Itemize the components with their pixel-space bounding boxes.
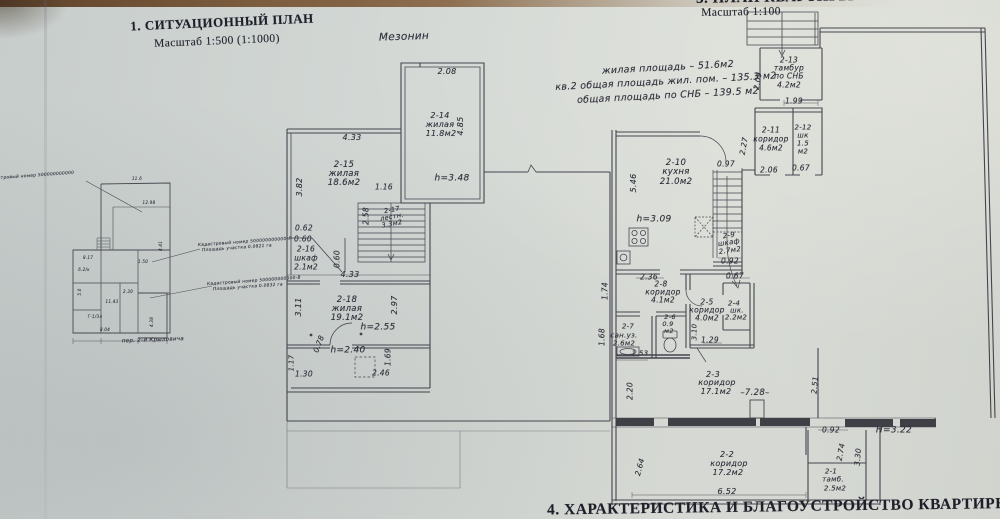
room-2-16-type: шкаф: [294, 254, 318, 262]
dim-label: 0.62: [295, 224, 313, 232]
room-2-16-number: 2-16: [297, 245, 315, 253]
level-mark: –7.28–: [740, 389, 769, 398]
dim-label: 2.58: [362, 207, 370, 225]
dim-label: 3.10: [692, 324, 699, 341]
dim-label: 4.33: [342, 134, 361, 142]
dim-label: 2.30: [123, 290, 133, 294]
room-2-2-number: 2-2: [720, 451, 734, 459]
dim-label: 4.38: [150, 317, 154, 327]
dim-label: 0.67: [726, 272, 744, 280]
room-2-4-area: 2.2м2: [725, 315, 747, 322]
dim-label: 2.09: [753, 72, 763, 91]
dim-label: 6.2/к: [78, 268, 90, 272]
room-2-18-area: 19.1м2: [331, 314, 364, 323]
dim-label: 2.08: [437, 68, 456, 76]
room-2-14-area: 11.8м2: [426, 130, 457, 138]
site-plan-scale: Масштаб 1:500 (1:1000): [154, 34, 280, 51]
dim-label: 2.51: [810, 376, 819, 394]
dim-label: 1.69: [384, 348, 392, 366]
dim-label: 11.43: [106, 300, 119, 304]
room-2-10-area: 21.0м2: [660, 178, 693, 187]
dim-label: 0.92: [822, 426, 840, 434]
apartment-plan-scale: Масштаб 1:100: [701, 7, 781, 20]
dim-label: 2.74: [836, 443, 846, 462]
dim-label: 8.17: [83, 256, 93, 260]
room-2-15-area: 18.6м2: [328, 179, 361, 188]
dim-label: 4.33: [340, 271, 359, 279]
room-2-12-type: шк: [797, 133, 808, 140]
room-2-7-type: сан.уз.: [610, 333, 637, 340]
room-2-17-area: 3.3м2: [381, 219, 403, 229]
dim-label: 2.20: [626, 382, 634, 400]
dim-label: 5.46: [630, 173, 638, 192]
room-2-11-number: 2-11: [762, 126, 780, 134]
dim-label: 1.74: [601, 282, 609, 300]
height-mark-annex: h=2.40: [330, 347, 365, 356]
mezzanine-title: Мезонин: [379, 31, 430, 43]
dim-label: 1.53: [632, 351, 649, 358]
characteristics-title: 4. ХАРАКТЕРИСТИКА И БЛАГОУСТРОЙСТВО КВАР…: [547, 496, 1000, 518]
dim-label: 2.06: [760, 166, 778, 174]
room-2-1-area: 2.5м2: [824, 486, 846, 493]
room-2-14-number: 2-14: [430, 112, 449, 120]
labels-layer: 1. СИТУАЦИОННЫЙ ПЛАНМасштаб 1:500 (1:100…: [0, 0, 1000, 519]
dim-label: 2.64: [634, 457, 646, 476]
dim-label: 0.60: [333, 250, 341, 268]
dim-label: 6.52: [717, 488, 736, 496]
height-mark-kitchen: h=3.09: [636, 216, 671, 225]
room-2-11-type: коридор: [753, 135, 788, 143]
height-mark-lower: Н=3.22: [876, 427, 912, 436]
room-2-13-area: 4.2м2: [777, 81, 801, 89]
dim-label: 1.29: [701, 336, 719, 344]
dim-label: 1.50: [138, 260, 148, 264]
room-2-1-number: 2-1: [825, 469, 837, 476]
room-2-10-type: кухня: [662, 168, 689, 177]
dim-label: 2.46: [372, 369, 390, 377]
cadastral-annotation-0: Кадастровый номер 500000000000: [0, 172, 74, 182]
room-2-12-area1: 1.5: [797, 141, 809, 148]
street-label: пер. 2-й Крыловича: [122, 337, 184, 345]
dim-label: 1.16: [375, 183, 393, 191]
dim-label: 3.11: [295, 297, 303, 316]
room-2-2-type: коридор: [710, 460, 748, 468]
room-2-6-area2: м2: [664, 328, 674, 335]
height-mark-2-18: h=2.55: [360, 324, 395, 333]
dim-label: Г-1/Зл: [88, 315, 103, 319]
site-plan-title: 1. СИТУАЦИОННЫЙ ПЛАН: [130, 12, 314, 33]
dim-label: 1.30: [295, 370, 313, 378]
room-2-12-number: 2-12: [794, 125, 811, 132]
dim-label: 2.97: [391, 295, 399, 314]
dim-label: 4.85: [457, 116, 465, 135]
room-2-13-type2: по СНБ: [774, 72, 804, 80]
room-2-9-area: 2.7м2: [718, 246, 741, 256]
dim-label: 5.0: [78, 288, 82, 295]
room-2-14-type: жилая: [426, 121, 455, 129]
height-mark-2-14: h=3.48: [434, 175, 469, 184]
dim-label: 0.92: [721, 257, 739, 265]
room-2-3-area: 17.1м2: [701, 388, 732, 396]
dim-label: 2.27: [739, 137, 749, 156]
room-2-3-type: коридор: [698, 379, 736, 387]
room-2-16-area: 2.1м2: [294, 263, 318, 271]
room-2-2-area: 17.2м2: [713, 469, 744, 477]
dim-label: 0.97: [717, 160, 735, 168]
dim-label: 0.60: [294, 235, 312, 243]
room-2-11-area: 4.6м2: [759, 144, 783, 152]
dim-label: 3.30: [853, 448, 862, 466]
dim-label: 3.82: [296, 177, 304, 196]
room-2-1-type: тамб.: [822, 477, 844, 484]
dim-label: 12.98: [143, 201, 156, 205]
dim-label: 1.68: [598, 328, 606, 346]
dim-label: 8.04: [100, 328, 110, 332]
room-2-12-area2: м2: [798, 149, 808, 156]
dim-label: 4.41: [159, 241, 163, 251]
scanned-floorplan-photo: 1. СИТУАЦИОННЫЙ ПЛАНМасштаб 1:500 (1:100…: [0, 0, 1000, 519]
dim-label: 1.99: [785, 97, 803, 105]
room-2-7-area: 2.6м2: [613, 341, 635, 348]
dim-label: 0.67: [792, 164, 810, 172]
room-2-7-number: 2-7: [622, 324, 634, 331]
room-2-8-area: 4.1м2: [651, 296, 675, 304]
dim-label: 11.6: [132, 177, 142, 181]
dim-label: 1.17: [289, 355, 296, 372]
room-2-5-area: 4.0м2: [695, 314, 719, 322]
dim-label: 0.78: [312, 334, 325, 353]
